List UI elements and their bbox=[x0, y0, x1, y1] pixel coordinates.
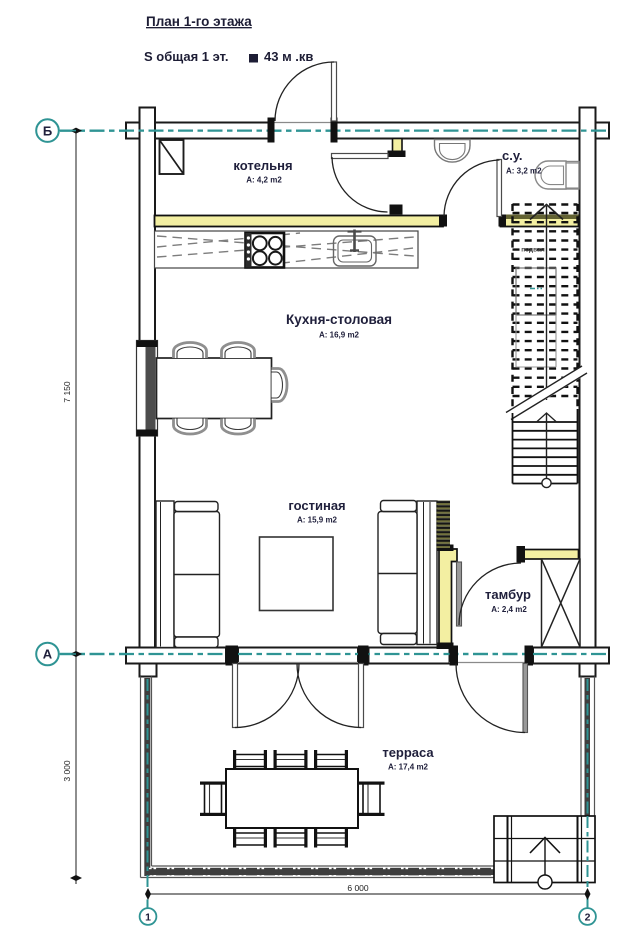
svg-text:2: 2 bbox=[585, 911, 591, 923]
svg-text:6 000: 6 000 bbox=[347, 883, 369, 893]
svg-text:терраса: терраса bbox=[382, 745, 434, 760]
svg-text:1: 1 bbox=[145, 911, 151, 923]
svg-text:План 1-го этажа: План 1-го этажа bbox=[146, 14, 252, 29]
svg-text:гостиная: гостиная bbox=[288, 498, 345, 513]
svg-text:3 000: 3 000 bbox=[62, 760, 72, 782]
svg-text:A: 3,2 m2: A: 3,2 m2 bbox=[506, 167, 542, 176]
svg-text:с.у.: с.у. bbox=[502, 148, 523, 163]
svg-text:Кухня-столовая: Кухня-столовая bbox=[286, 312, 392, 327]
svg-text:А: А bbox=[43, 647, 53, 662]
svg-text:43 м .кв: 43 м .кв bbox=[264, 49, 313, 64]
svg-text:A: 4,2 m2: A: 4,2 m2 bbox=[246, 176, 282, 185]
svg-text:A: 2,4 m2: A: 2,4 m2 bbox=[491, 605, 527, 614]
svg-text:7 150: 7 150 bbox=[62, 381, 72, 403]
svg-text:тамбур: тамбур bbox=[485, 587, 531, 602]
svg-text:котельня: котельня bbox=[233, 158, 292, 173]
svg-text:подвал: подвал bbox=[521, 247, 545, 254]
svg-text:S общая 1 эт.: S общая 1 эт. bbox=[144, 49, 229, 64]
svg-text:Б: Б bbox=[43, 123, 52, 138]
svg-text:A: 15,9 m2: A: 15,9 m2 bbox=[297, 516, 338, 525]
svg-text:A: 17,4 m2: A: 17,4 m2 bbox=[388, 763, 429, 772]
svg-text:A: 16,9 m2: A: 16,9 m2 bbox=[319, 331, 360, 340]
